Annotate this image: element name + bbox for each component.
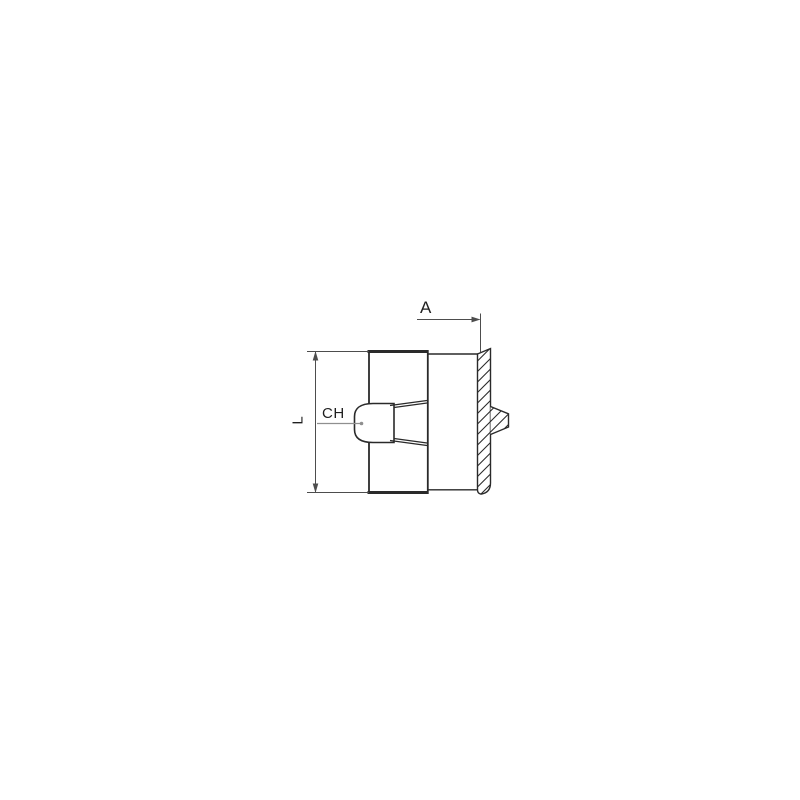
- arrow-down-icon: [313, 484, 319, 494]
- arrow-up-icon: [313, 351, 319, 361]
- hex-section: [355, 401, 428, 446]
- length-dimension-label: L: [291, 416, 306, 424]
- drawing-canvas: A CH L: [0, 0, 800, 800]
- arrow-right-icon: [472, 317, 481, 323]
- fitting-technical-drawing: [0, 0, 800, 800]
- hex-size-label: CH: [322, 406, 345, 421]
- dimension-A: [417, 314, 481, 353]
- thread-dimension-label: A: [420, 299, 432, 316]
- leader-dot: [360, 422, 364, 426]
- hatch-pattern: [470, 313, 515, 547]
